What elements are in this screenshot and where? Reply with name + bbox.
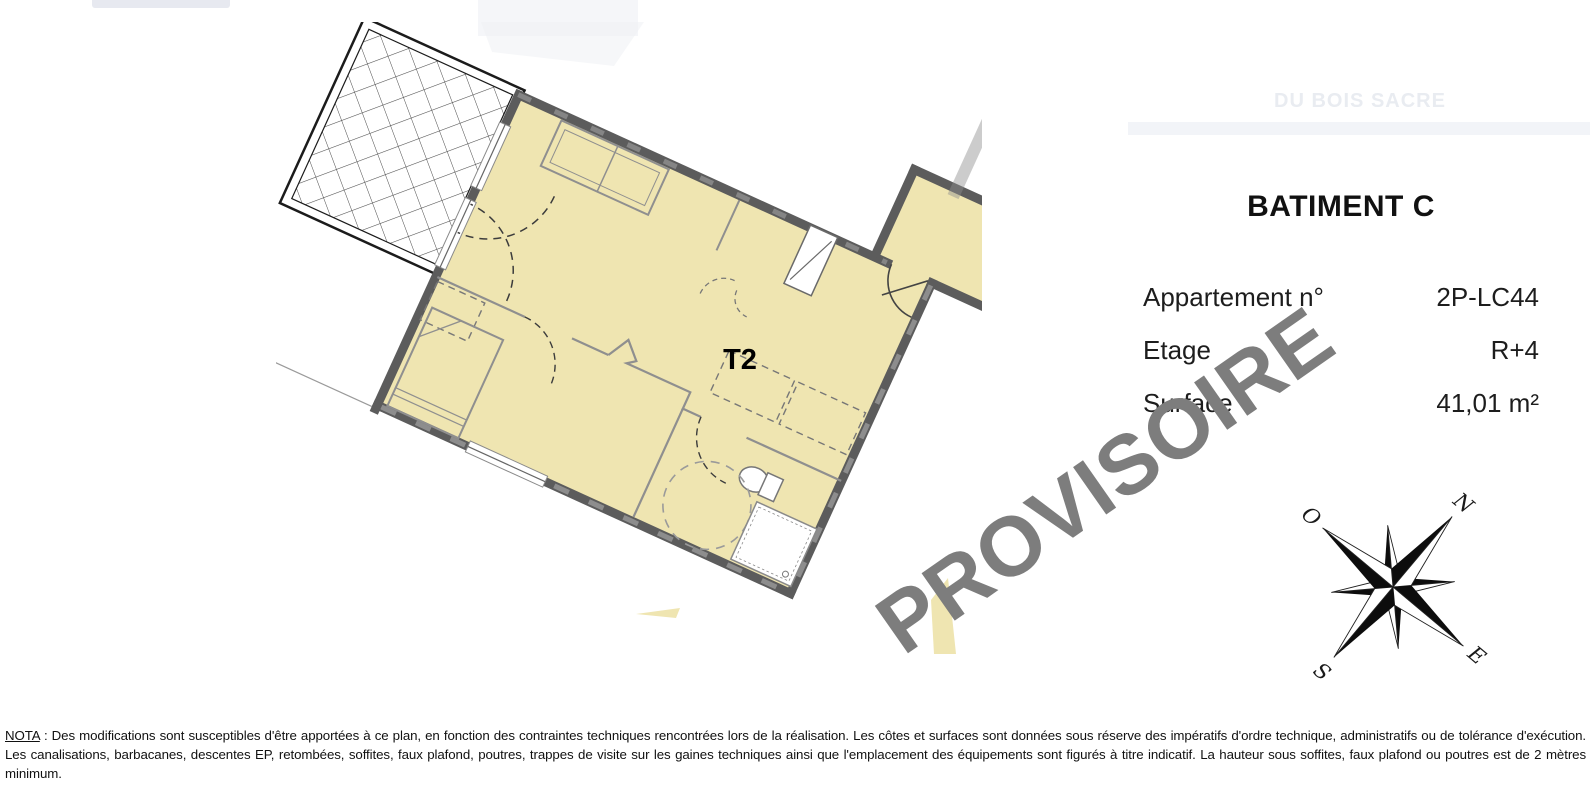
unit-type-label: T2 [700, 344, 780, 377]
faint-wall-fragment [948, 108, 982, 199]
partial-logo-fragment [92, 0, 230, 8]
compass-west-label: O [1297, 502, 1326, 531]
surface-value: 41,01 m² [1436, 388, 1539, 419]
nota-text: : Des modifications sont susceptibles d'… [5, 728, 1586, 781]
floor-value: R+4 [1491, 335, 1539, 366]
compass-east-label: E [1462, 641, 1490, 670]
apartment-number-value: 2P-LC44 [1436, 282, 1539, 313]
nota-disclaimer: NOTA : Des modifications sont susceptibl… [5, 727, 1586, 784]
faint-neighbor-polygon [481, 22, 644, 66]
neighbor-sliver-2 [636, 608, 680, 618]
compass-south-label: S [1309, 658, 1335, 686]
building-title: BATIMENT C [1143, 190, 1539, 224]
compass-rose: N E S O [1268, 462, 1518, 712]
compass-major-points [1268, 462, 1518, 712]
compass-north-label: N [1448, 487, 1479, 518]
faint-address-line [1128, 122, 1590, 135]
nota-label: NOTA [5, 728, 40, 743]
faint-project-name: DU BOIS SACRE [1150, 90, 1570, 113]
floor-plan-page: { "header": { "faint_project_line": "DU … [0, 0, 1591, 794]
floor-plan-drawing [276, 22, 982, 662]
rotated-plan-group [276, 22, 982, 645]
wall-extension-line [276, 358, 372, 406]
